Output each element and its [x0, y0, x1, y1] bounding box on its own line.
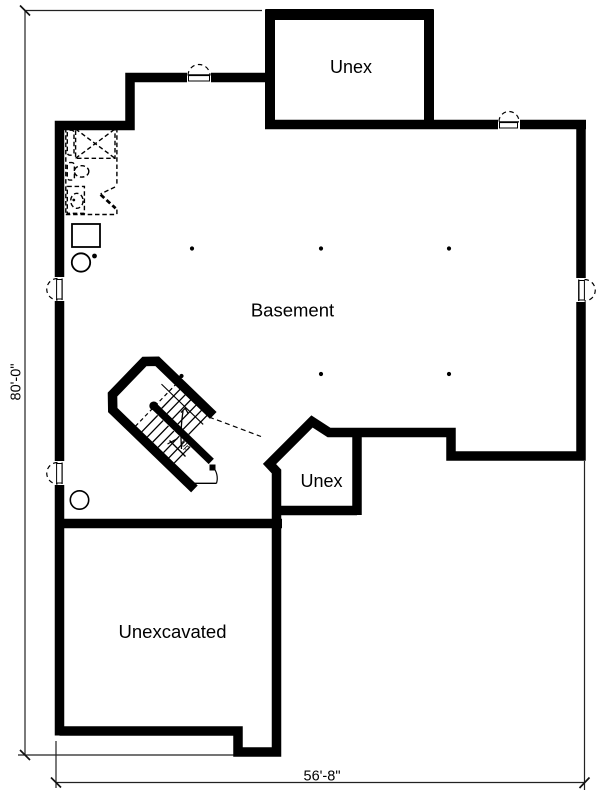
svg-text:Basement: Basement	[251, 300, 334, 321]
svg-text:Unex: Unex	[330, 57, 372, 77]
svg-text:Unexcavated: Unexcavated	[119, 621, 227, 642]
svg-text:Unex: Unex	[300, 471, 342, 491]
svg-text:56'-8": 56'-8"	[304, 769, 341, 785]
svg-text:80'-0": 80'-0"	[9, 364, 25, 401]
